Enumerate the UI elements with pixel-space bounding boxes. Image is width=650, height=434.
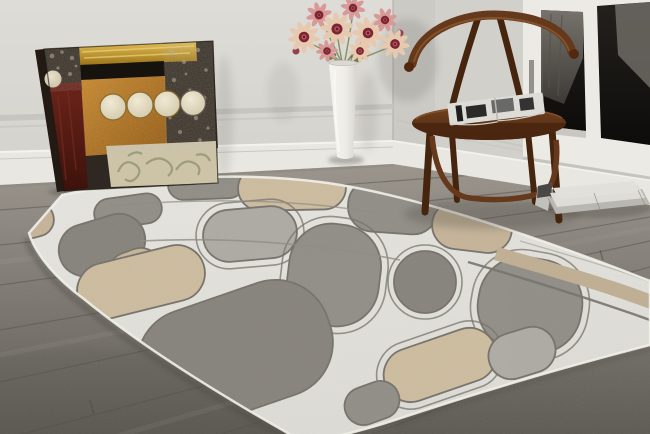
vase-wall-shadow xyxy=(358,72,378,152)
cream-circle xyxy=(154,91,180,117)
chair-arm-knob-right xyxy=(569,49,579,59)
magazine-photo xyxy=(519,97,534,111)
chair-arm-knob-left xyxy=(404,62,414,72)
chair-leg-front-left xyxy=(425,132,430,212)
abstract-painting xyxy=(35,41,233,192)
magazine-photo xyxy=(466,104,487,118)
cream-circle xyxy=(127,92,153,118)
flower-wall-shadow-left xyxy=(267,62,299,122)
room-photo: Room corner with a modern gray and beige… xyxy=(0,0,650,434)
vase-rim xyxy=(329,60,357,65)
cream-circle xyxy=(181,91,206,116)
cream-circle xyxy=(100,94,126,120)
orange-texture xyxy=(81,76,167,156)
room-scene: Room corner with a modern gray and beige… xyxy=(0,0,650,434)
